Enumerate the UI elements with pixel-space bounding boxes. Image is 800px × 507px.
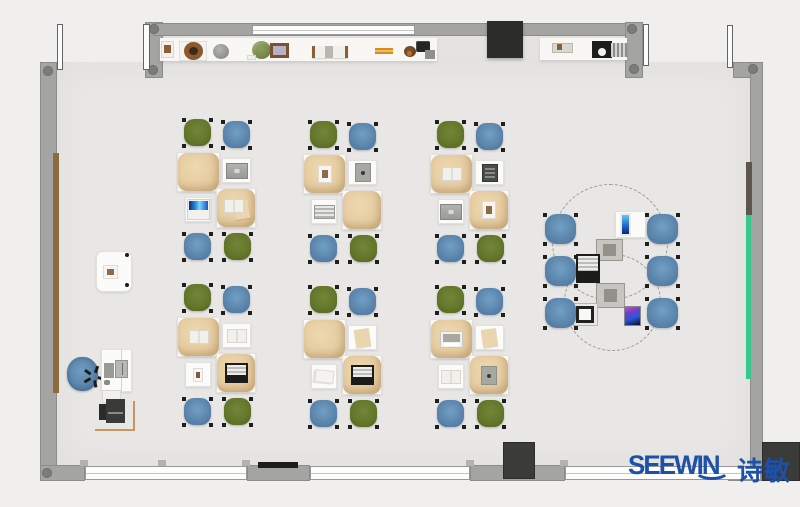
student-chair-green (182, 118, 213, 148)
chair-foot (374, 122, 378, 126)
printer (99, 399, 125, 423)
student-chair-blue (347, 122, 378, 152)
desk-item-tablet-gray (355, 163, 371, 182)
chair-foot (462, 425, 466, 429)
desk-item-book-open (189, 330, 209, 344)
chair-seat (437, 400, 464, 427)
chair-foot (475, 399, 479, 403)
chair-foot (435, 285, 439, 289)
chair-foot (501, 287, 505, 291)
chair-seat (310, 286, 337, 313)
chair-foot (221, 311, 225, 315)
student-chair-green (182, 283, 213, 313)
chair-foot (375, 260, 379, 264)
chair-foot (209, 423, 213, 427)
window-bottom-2 (310, 466, 470, 480)
desk-item-papers (314, 369, 334, 384)
desk-cushion-tan (178, 153, 219, 191)
chair-foot (502, 234, 506, 238)
door-leaf-top-right-2 (727, 25, 733, 68)
chair-foot (347, 287, 351, 291)
chair-foot (209, 232, 213, 236)
chair-foot (474, 287, 478, 291)
chair-seat (349, 123, 376, 150)
wall-corner-dot (42, 468, 52, 478)
chair-seat (223, 121, 250, 148)
chair-foot (375, 425, 379, 429)
collab-chair-blue (645, 255, 680, 288)
counter-item-gray-sphere (213, 44, 229, 59)
chair-foot (543, 255, 547, 259)
wood-panel-left (53, 153, 59, 393)
chair-foot (249, 258, 253, 262)
chair-foot (348, 260, 352, 264)
chair-foot (182, 258, 186, 262)
counter-item-gray-gadget (425, 50, 435, 59)
chair-foot (462, 146, 466, 150)
chair-foot (374, 287, 378, 291)
chair-seat (647, 256, 678, 286)
desk-item-book-lined (314, 205, 335, 219)
chair-foot (308, 399, 312, 403)
chair-foot (462, 285, 466, 289)
student-chair-blue (221, 285, 252, 315)
desk-item-tablet-gray (481, 366, 497, 385)
chair-foot (574, 326, 578, 330)
chair-foot (182, 397, 186, 401)
chair-foot (375, 399, 379, 403)
chair-seat (545, 256, 576, 286)
desk-item-tablet-dark (482, 164, 498, 182)
wall-corner-dot (629, 64, 639, 74)
chair-foot (645, 297, 649, 301)
chair-foot (543, 284, 547, 288)
counter-item-brown-ornament (164, 45, 171, 53)
counter-item-orange-sticks (375, 48, 393, 54)
teacher-monitor (115, 360, 128, 378)
student-chair-green (348, 234, 379, 264)
chair-foot (375, 234, 379, 238)
window-mullion-tab (242, 460, 250, 466)
chair-foot (221, 120, 225, 124)
desk-item-monitor-white (440, 331, 463, 348)
chair-foot (502, 399, 506, 403)
chair-foot (543, 213, 547, 217)
desk-item-paper-pic (482, 201, 496, 219)
chair-foot (435, 120, 439, 124)
chair-foot (222, 232, 226, 236)
desk-cushion-tan (304, 320, 345, 358)
student-chair-blue (182, 232, 213, 262)
chair-foot (248, 146, 252, 150)
desk-item-laptop-black (351, 365, 374, 385)
chair-foot (474, 148, 478, 152)
chair-foot (462, 120, 466, 124)
chair-foot (348, 234, 352, 238)
counter-item-brown-dot (557, 44, 562, 50)
chair-foot (209, 118, 213, 122)
chair-foot (209, 283, 213, 287)
chair-foot (182, 144, 186, 148)
student-chair-green (475, 234, 506, 264)
chair-foot (462, 234, 466, 238)
chair-foot (308, 146, 312, 150)
collab-smartphone (624, 306, 641, 326)
counter-item-orange-dot-gadget (407, 51, 412, 56)
chair-foot (335, 285, 339, 289)
chair-foot (222, 397, 226, 401)
student-chair-green (308, 120, 339, 150)
chair-foot (248, 285, 252, 289)
desk-item-paper-pic (318, 165, 332, 183)
desk-item-paper-tan (481, 328, 498, 348)
student-chair-blue (435, 399, 466, 429)
chair-foot (182, 309, 186, 313)
chair-foot (502, 425, 506, 429)
wall-corner-dot (748, 64, 758, 74)
counter-item-gray-box (552, 43, 573, 53)
chair-foot (501, 148, 505, 152)
seewin-logo: SEEWIN 诗敏 (626, 445, 800, 485)
chair-foot (645, 255, 649, 259)
chair-foot (308, 311, 312, 315)
chair-seat (545, 298, 576, 328)
chair-foot (335, 260, 339, 264)
chair-seat (184, 398, 211, 425)
collab-chair-blue (543, 213, 578, 246)
chair-foot (501, 313, 505, 317)
collab-tablet-blue-screen (620, 213, 631, 236)
desk-cluster-B (303, 120, 382, 265)
chair-seat (310, 235, 337, 262)
chair-foot (335, 234, 339, 238)
student-chair-green (222, 232, 253, 262)
collab-tablet-gray-bottom (596, 283, 625, 308)
chair-seat (477, 400, 504, 427)
window-mullion-tab (80, 460, 88, 466)
student-chair-blue (221, 120, 252, 150)
chair-foot (645, 213, 649, 217)
teacher-mouse (104, 380, 110, 385)
chair-foot (209, 258, 213, 262)
chair-seat (350, 235, 377, 262)
chair-foot (374, 313, 378, 317)
wall-right (750, 62, 763, 467)
chair-foot (475, 234, 479, 238)
chair-foot (435, 311, 439, 315)
chair-foot (676, 213, 680, 217)
student-chair-blue (308, 234, 339, 264)
chair-foot (676, 284, 680, 288)
chair-foot (248, 120, 252, 124)
chair-foot (308, 120, 312, 124)
desk-item-paper-tan (354, 328, 371, 348)
chair-foot (308, 425, 312, 429)
desk-item-pic-brown (193, 368, 203, 382)
chair-foot (475, 260, 479, 264)
chair-foot (543, 326, 547, 330)
chair-foot (182, 232, 186, 236)
vent-bar (258, 462, 298, 468)
green-board-right (746, 215, 751, 379)
student-chair-blue (435, 234, 466, 264)
chair-seat (310, 121, 337, 148)
wall-corner-dot (43, 66, 53, 76)
desk-item-laptop-gray (226, 163, 248, 179)
window-mullion-tab (158, 460, 166, 466)
chair-foot (574, 297, 578, 301)
chair-foot (474, 122, 478, 126)
chair-foot (308, 285, 312, 289)
chair-foot (676, 255, 680, 259)
chair-foot (249, 397, 253, 401)
chair-foot (347, 122, 351, 126)
collab-chair-blue (645, 213, 680, 246)
student-chair-blue (347, 287, 378, 317)
chair-seat (437, 235, 464, 262)
chair-foot (308, 234, 312, 238)
chair-foot (574, 213, 578, 217)
chair-foot (435, 146, 439, 150)
side-table-leg-2 (125, 283, 129, 287)
chair-seat (184, 233, 211, 260)
student-chair-blue (474, 122, 505, 152)
desk-cluster-E (303, 285, 382, 430)
chair-foot (348, 425, 352, 429)
chair-foot (248, 311, 252, 315)
desk-cushion-tan (343, 191, 381, 229)
student-chair-green (308, 285, 339, 315)
student-chair-blue (308, 399, 339, 429)
chair-seat (476, 288, 503, 315)
counter-item-black-camera (592, 41, 612, 58)
counter-item-bookends-row (312, 46, 348, 58)
chair-seat (184, 119, 211, 146)
desk-item-laptop-gray (440, 204, 462, 220)
chair-foot (347, 313, 351, 317)
desk-item-book-open (224, 199, 244, 213)
chair-foot (462, 311, 466, 315)
chair-foot (475, 425, 479, 429)
chair-foot (209, 397, 213, 401)
chair-foot (502, 260, 506, 264)
chair-foot (435, 425, 439, 429)
tv-panel (487, 21, 523, 58)
chair-seat (476, 123, 503, 150)
counter-item-wreath-bowl (184, 42, 203, 60)
chair-seat (224, 233, 251, 260)
chair-seat (647, 298, 678, 328)
window-mullion-tab (560, 460, 568, 466)
desk-item-book-open (441, 370, 461, 384)
side-table-photo (103, 265, 118, 279)
chair-foot (222, 258, 226, 262)
counter-item-striped-ramp (611, 43, 627, 57)
chair-foot (462, 399, 466, 403)
desk-cluster-F (430, 285, 509, 430)
chair-foot (308, 260, 312, 264)
window-mullion-tab (466, 460, 474, 466)
chair-foot (474, 313, 478, 317)
chair-foot (222, 423, 226, 427)
wall-corner-dot (149, 24, 159, 34)
chair-foot (249, 232, 253, 236)
collab-laptop-black (576, 254, 600, 283)
chair-foot (574, 284, 578, 288)
chair-foot (501, 122, 505, 126)
chair-foot (543, 297, 547, 301)
wall-corner-dot (627, 24, 637, 34)
logo-chinese-text: 诗敏 (737, 451, 791, 488)
dark-column-bottom-center (503, 442, 535, 479)
chair-foot (645, 284, 649, 288)
desk-item-book-open (442, 167, 462, 181)
chair-foot (435, 399, 439, 403)
chair-foot (335, 146, 339, 150)
teacher-keyboard (104, 363, 114, 378)
chair-foot (676, 326, 680, 330)
chair-foot (676, 297, 680, 301)
chair-foot (645, 242, 649, 246)
chair-seat (350, 400, 377, 427)
chair-foot (335, 311, 339, 315)
chair-foot (182, 118, 186, 122)
chair-seat (545, 214, 576, 244)
student-chair-green (475, 399, 506, 429)
collab-tablet-gray-top (596, 239, 623, 261)
student-chair-green (435, 285, 466, 315)
chair-seat (310, 400, 337, 427)
window-bottom-1 (85, 466, 247, 480)
desk-item-laptop-black (225, 363, 248, 383)
chair-foot (182, 423, 186, 427)
chair-foot (348, 399, 352, 403)
side-table-leg-1 (125, 253, 129, 257)
chair-foot (462, 260, 466, 264)
window-top (252, 25, 415, 35)
chair-foot (221, 285, 225, 289)
printer-part (106, 399, 125, 423)
door-leaf-top-left-1 (57, 24, 63, 70)
chair-foot (574, 242, 578, 246)
logo-smile-arc-icon (694, 460, 730, 480)
collab-chair-blue (543, 297, 578, 330)
chair-foot (249, 423, 253, 427)
chair-foot (335, 425, 339, 429)
orange-line-vertical (133, 401, 135, 431)
teacher-chair (64, 355, 101, 394)
chair-foot (543, 242, 547, 246)
chair-seat (184, 284, 211, 311)
door-leaf-top-left-2 (143, 24, 150, 70)
student-chair-green (222, 397, 253, 427)
chair-foot (435, 234, 439, 238)
chair-seat (477, 235, 504, 262)
desk-item-book-open (227, 329, 247, 343)
chair-foot (335, 120, 339, 124)
chair-foot (676, 242, 680, 246)
chair-seat (647, 214, 678, 244)
chair-seat (223, 286, 250, 313)
chair-foot (645, 326, 649, 330)
chair-seat (224, 398, 251, 425)
chair-foot (209, 144, 213, 148)
chair-foot (347, 148, 351, 152)
desk-item-laptop-blue (187, 199, 210, 220)
dark-panel-right (746, 162, 752, 215)
chair-foot (374, 148, 378, 152)
student-chair-blue (182, 397, 213, 427)
chair-seat (437, 286, 464, 313)
chair-foot (209, 309, 213, 313)
chair-foot (221, 146, 225, 150)
student-chair-blue (474, 287, 505, 317)
collab-chair-blue (543, 255, 578, 288)
office-floor-plan: SEEWIN 诗敏 (0, 0, 800, 507)
chair-seat (437, 121, 464, 148)
desk-cluster-A (177, 118, 256, 263)
chair-foot (182, 283, 186, 287)
chair-foot (574, 255, 578, 259)
collab-chair-blue (645, 297, 680, 330)
chair-foot (435, 260, 439, 264)
counter-item-paper-scraps (247, 55, 256, 60)
desk-cluster-D (177, 283, 256, 428)
chair-foot (335, 399, 339, 403)
student-chair-green (348, 399, 379, 429)
door-leaf-top-right-1 (643, 24, 649, 66)
student-chair-green (435, 120, 466, 150)
orange-line-horizontal (95, 429, 135, 431)
printer-part (108, 412, 123, 414)
chair-seat (349, 288, 376, 315)
counter-item-photo-frame (270, 43, 289, 58)
desk-cluster-C (430, 120, 509, 265)
